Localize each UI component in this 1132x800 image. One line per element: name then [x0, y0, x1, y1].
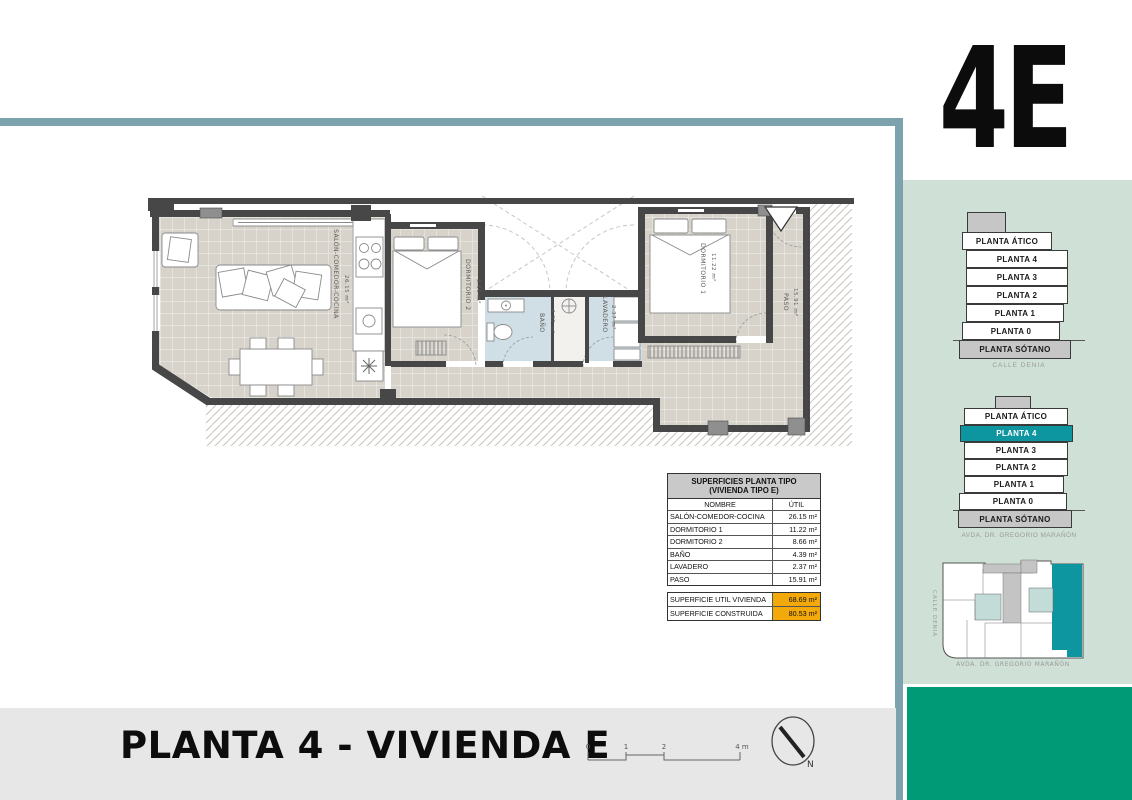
stack1-street-caption: CALLE DENIA — [959, 362, 1079, 369]
table-header-row: NOMBRE ÚTIL — [668, 499, 820, 510]
patio-lightwell — [482, 196, 634, 293]
total-row: SUPERFICIE UTIL VIVIENDA 68.69 m² — [668, 593, 820, 606]
floor-plan: SALÓN-COMEDOR-COCINA 26.15 m² DORMITORIO… — [148, 193, 868, 458]
total-name: SUPERFICIE UTIL VIVIENDA — [668, 593, 773, 606]
sofa — [216, 265, 331, 310]
sidebar-green-block — [907, 687, 1132, 800]
floor-row-p0: PLANTA 0 — [962, 322, 1060, 340]
table-row: PASO 15.91 m² — [668, 573, 820, 586]
room-label-dorm1: DORMITORIO 1 — [699, 243, 706, 294]
col-header-nombre: NOMBRE — [668, 499, 773, 510]
row-name: SALÓN-COMEDOR-COCINA — [668, 511, 773, 523]
total-value-highlight: 80.53 m² — [773, 607, 820, 620]
row-value: 15.91 m² — [773, 574, 820, 586]
table-row: SALÓN-COMEDOR-COCINA 26.15 m² — [668, 510, 820, 523]
row-value: 26.15 m² — [773, 511, 820, 523]
scale-tick-0: 0 — [586, 743, 590, 751]
floor-row-p3: PLANTA 3 — [966, 268, 1068, 286]
siteplan-street-bottom: AVDA. DR. GREGORIO MARAÑÓN — [956, 661, 1070, 668]
room-area-bano: 4.39 m² — [549, 309, 556, 334]
surfaces-table: SUPERFICIES PLANTA TIPO (VIVIENDA TIPO E… — [667, 473, 821, 621]
site-plan: CALLE DENIA AVDA. DR. GREGORIO MARAÑÓN — [925, 556, 1125, 668]
floor-row-p2: PLANTA 2 — [966, 286, 1068, 304]
room-area-dorm1: 11.22 m² — [710, 253, 717, 282]
row-name: BAÑO — [668, 549, 773, 561]
floor-stack-highlighted: PLANTA ÁTICO PLANTA 4 PLANTA 3 PLANTA 2 … — [959, 396, 1079, 556]
wc-basin — [562, 299, 576, 313]
room-area-salon: 26.15 m² — [343, 275, 350, 304]
room-label-paso: PASO — [782, 293, 789, 311]
floor-row-p1: PLANTA 1 — [964, 476, 1064, 493]
room-label-salon: SALÓN-COMEDOR-COCINA — [332, 229, 341, 319]
room-label-bano: BAÑO — [538, 313, 547, 333]
floor-row-atico: PLANTA ÁTICO — [962, 232, 1052, 250]
floor-row-p0: PLANTA 0 — [959, 493, 1067, 510]
window-radiator-top — [233, 219, 363, 226]
floor-row-p4-highlighted: PLANTA 4 — [960, 425, 1073, 442]
floor-row-p1: PLANTA 1 — [966, 304, 1064, 322]
north-arrow: N — [760, 710, 830, 780]
room-area-lavadero: 2.37 m² — [610, 305, 617, 330]
scale-tick-4m: 4 m — [735, 743, 749, 751]
dishwasher — [356, 351, 383, 381]
frame-vertical-bar — [895, 118, 903, 800]
row-name: DORMITORIO 2 — [668, 536, 773, 548]
floor-stack-context: PLANTA ÁTICO PLANTA 4 PLANTA 3 PLANTA 2 … — [959, 212, 1079, 377]
table-row: DORMITORIO 2 8.66 m² — [668, 535, 820, 548]
kitchen-counter — [353, 219, 385, 381]
row-name: DORMITORIO 1 — [668, 524, 773, 536]
table-row: BAÑO 4.39 m² — [668, 548, 820, 561]
plan-sheet-page: { "unit_label": "4E", "footer": { "title… — [0, 0, 1132, 800]
laundry-appliances — [614, 297, 640, 360]
floor-row-sotano: PLANTA SÓTANO — [958, 510, 1072, 528]
row-value: 11.22 m² — [773, 524, 820, 536]
stack2-street-caption: AVDA. DR. GREGORIO MARAÑÓN — [959, 532, 1079, 539]
total-row: SUPERFICIE CONSTRUIDA 80.53 m² — [668, 606, 820, 620]
radiator-dormitorio2 — [416, 341, 446, 355]
stack-roof-box — [967, 212, 1006, 234]
room-label-dorm2: DORMITORIO 2 — [464, 259, 471, 310]
radiator-paso — [648, 346, 740, 358]
siteplan-street-left: CALLE DENIA — [931, 590, 937, 637]
row-value: 8.66 m² — [773, 536, 820, 548]
surfaces-table-totals: SUPERFICIE UTIL VIVIENDA 68.69 m² SUPERF… — [667, 592, 821, 621]
floor-row-p4: PLANTA 4 — [966, 250, 1068, 268]
surfaces-table-main: SUPERFICIES PLANTA TIPO (VIVIENDA TIPO E… — [667, 473, 821, 586]
floor-row-p3: PLANTA 3 — [964, 442, 1068, 459]
table-row: LAVADERO 2.37 m² — [668, 560, 820, 573]
north-label: N — [807, 760, 814, 770]
scale-tick-1: 1 — [624, 743, 628, 751]
unit-label: 4E — [939, 30, 1061, 170]
surfaces-table-title-line2: (VIVIENDA TIPO E) — [669, 486, 819, 495]
total-name: SUPERFICIE CONSTRUIDA — [668, 607, 773, 620]
floor-row-p2: PLANTA 2 — [964, 459, 1068, 476]
dwelling-e-highlight — [1052, 564, 1082, 657]
scale-tick-2: 2 — [662, 743, 666, 751]
row-name: LAVADERO — [668, 561, 773, 573]
room-label-lavadero: LAVADERO — [601, 296, 608, 333]
frame-horizontal-bar — [0, 118, 903, 126]
row-name: PASO — [668, 574, 773, 586]
total-value-highlight: 68.69 m² — [773, 593, 820, 606]
table-row: DORMITORIO 1 11.22 m² — [668, 523, 820, 536]
surfaces-table-title: SUPERFICIES PLANTA TIPO (VIVIENDA TIPO E… — [668, 474, 820, 499]
row-value: 2.37 m² — [773, 561, 820, 573]
floor-row-atico: PLANTA ÁTICO — [964, 408, 1068, 425]
col-header-util: ÚTIL — [773, 499, 820, 510]
armchair — [162, 233, 198, 267]
surfaces-table-title-line1: SUPERFICIES PLANTA TIPO — [669, 477, 819, 486]
floor-row-sotano: PLANTA SÓTANO — [959, 340, 1071, 359]
row-value: 4.39 m² — [773, 549, 820, 561]
room-area-dorm2: 8.66 m² — [475, 279, 482, 304]
room-area-paso: 15.91 m² — [792, 288, 799, 317]
